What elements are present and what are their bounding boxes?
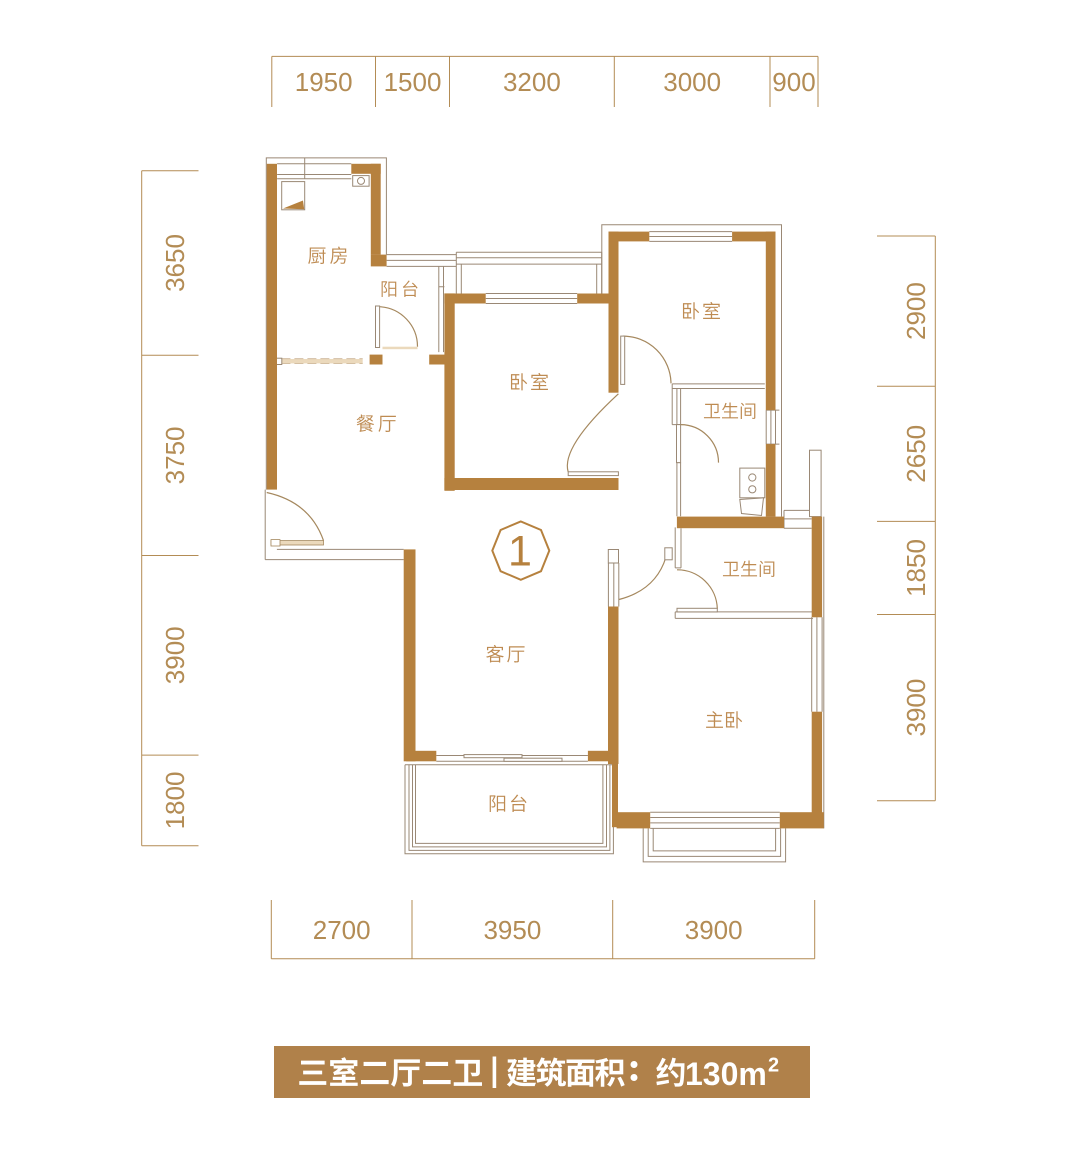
svg-text:900: 900 <box>772 67 815 97</box>
svg-text:1800: 1800 <box>160 772 190 830</box>
svg-text:3950: 3950 <box>483 915 541 945</box>
svg-text:1500: 1500 <box>384 67 442 97</box>
svg-text:2700: 2700 <box>313 915 371 945</box>
svg-text:3750: 3750 <box>160 426 190 484</box>
svg-text:2650: 2650 <box>901 425 931 483</box>
svg-text:1950: 1950 <box>295 67 353 97</box>
svg-text:3200: 3200 <box>503 67 561 97</box>
svg-text:3900: 3900 <box>685 915 743 945</box>
svg-text:1850: 1850 <box>901 539 931 597</box>
svg-text:3650: 3650 <box>160 234 190 292</box>
svg-text:3900: 3900 <box>160 626 190 684</box>
svg-text:1: 1 <box>508 528 532 576</box>
svg-text:3000: 3000 <box>663 67 721 97</box>
svg-text:3900: 3900 <box>901 679 931 737</box>
svg-text:2: 2 <box>768 1055 779 1077</box>
svg-text:2900: 2900 <box>901 282 931 340</box>
svg-text:130m: 130m <box>685 1056 767 1092</box>
